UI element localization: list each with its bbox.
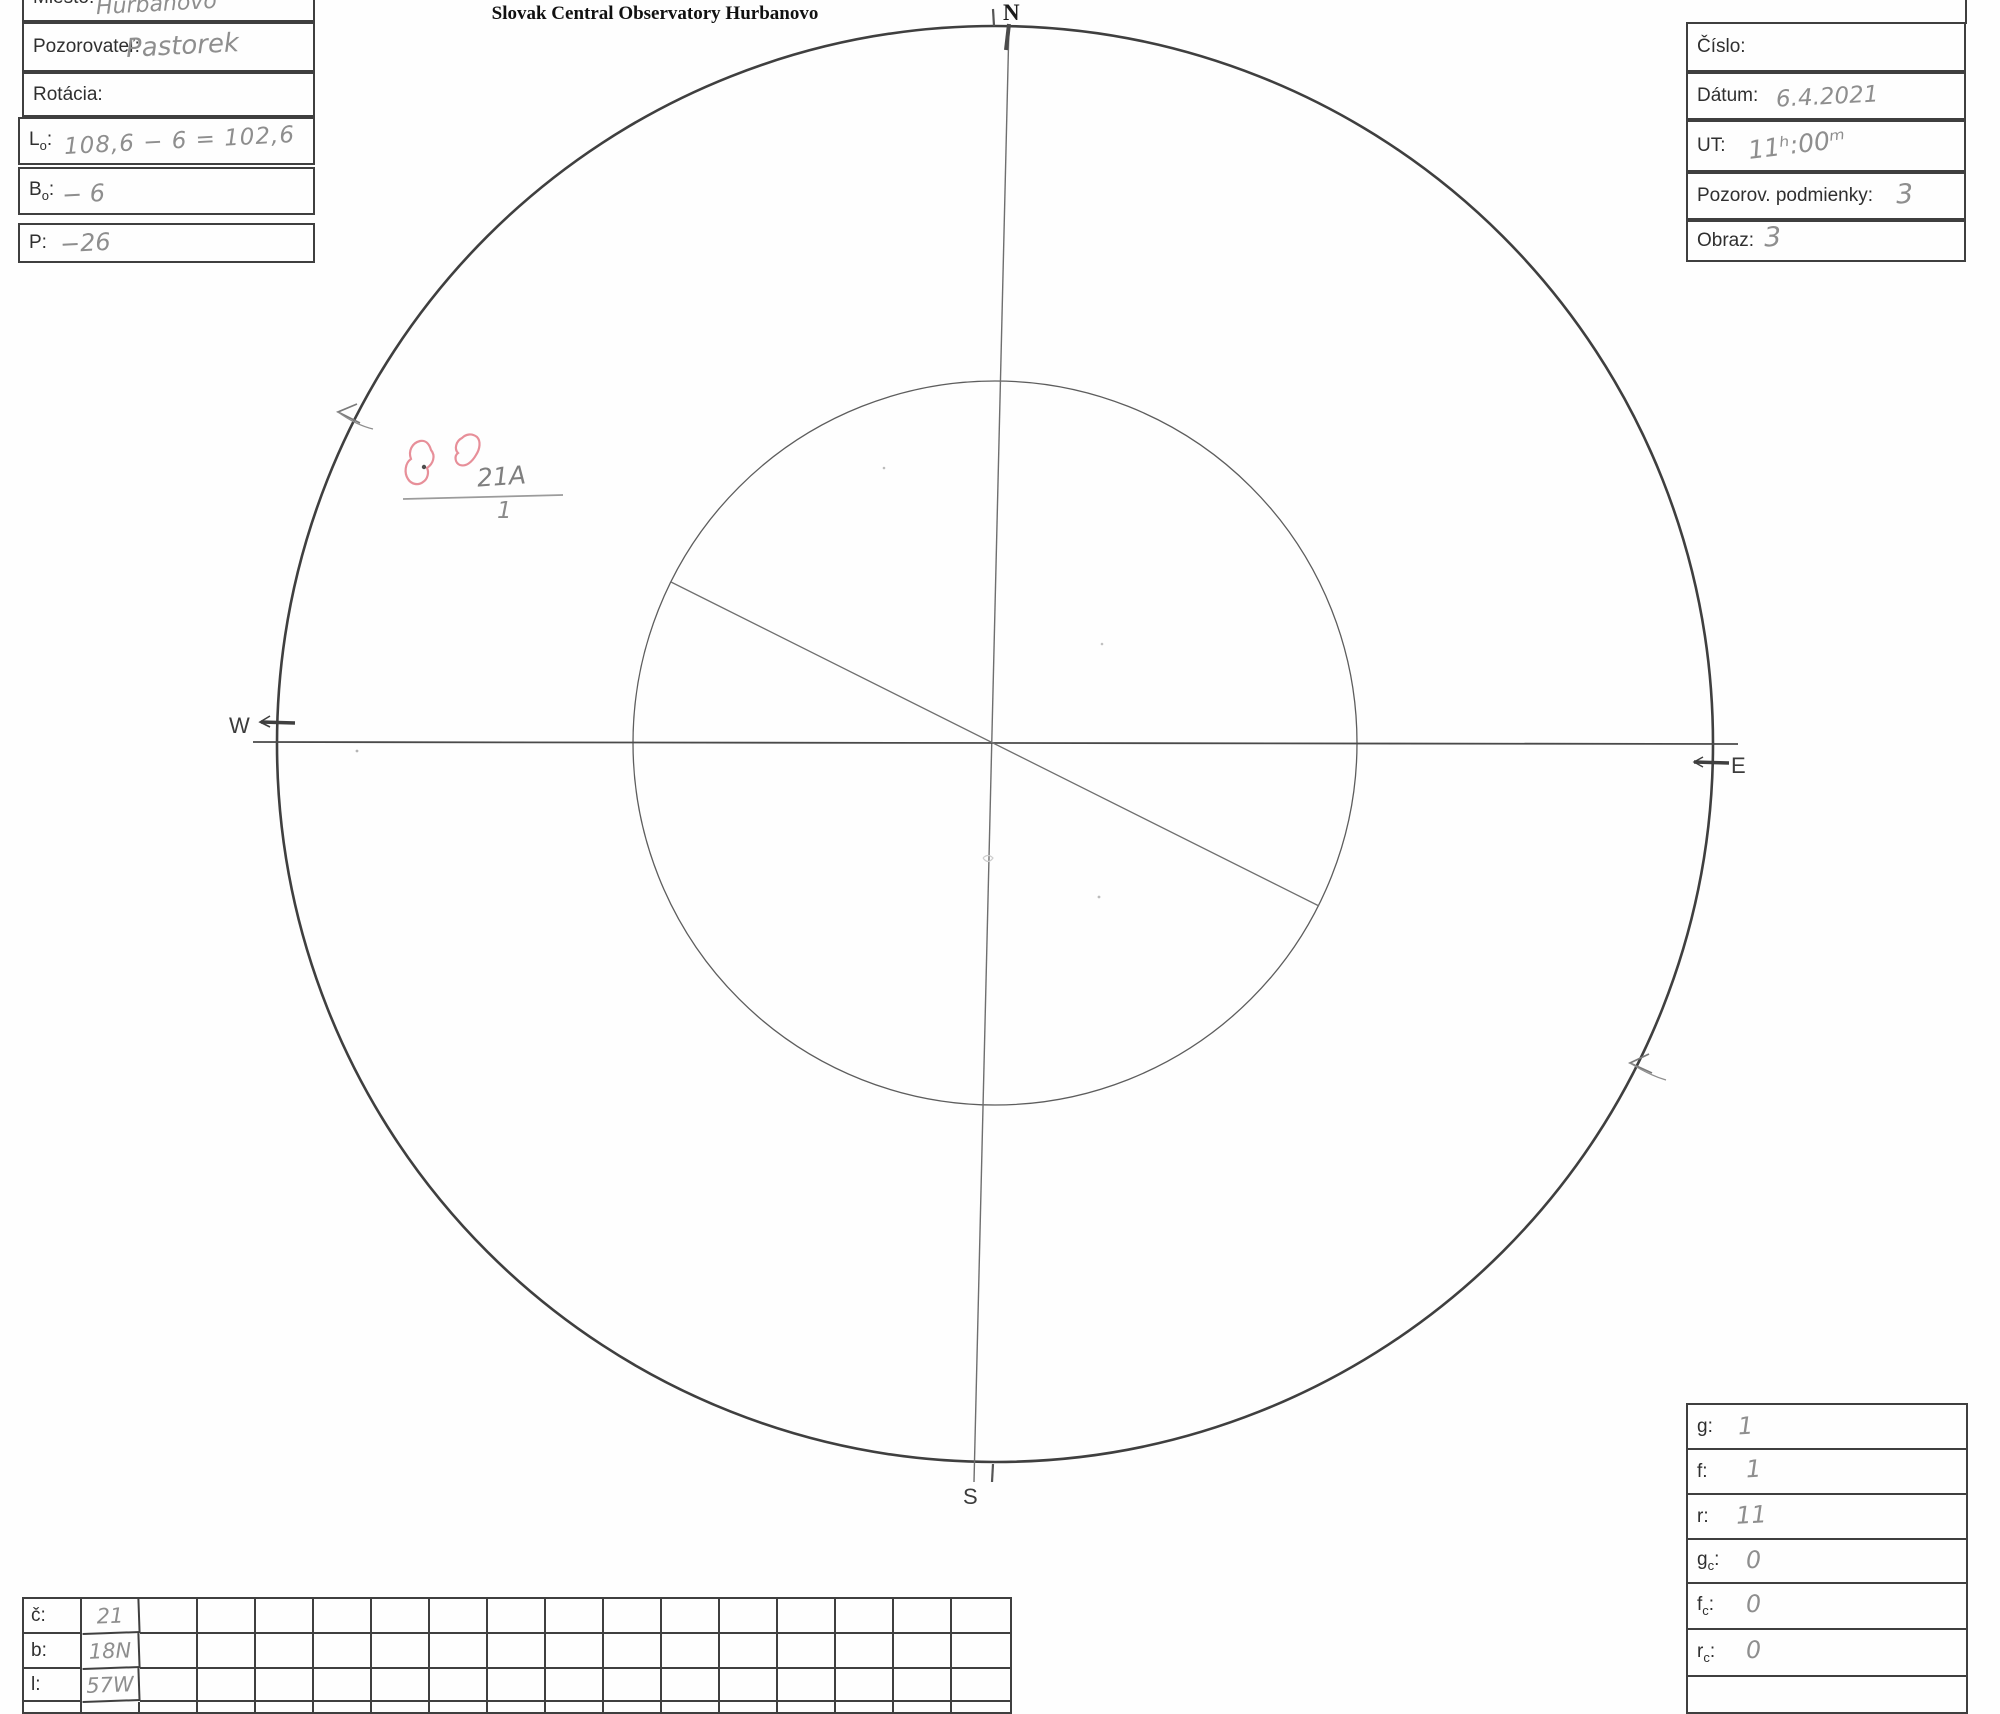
row-value-c: 21 bbox=[81, 1598, 140, 1635]
p-value-handwritten: −26 bbox=[59, 228, 111, 259]
pozorovatel-label: Pozorovateľ: bbox=[24, 36, 140, 58]
position-cell-empty bbox=[836, 1702, 894, 1714]
position-cell-empty bbox=[256, 1634, 314, 1669]
position-cell-empty bbox=[372, 1702, 430, 1714]
field-datum: Dátum: 6.4.2021 bbox=[1686, 72, 1966, 120]
gc-label: gc: bbox=[1688, 1549, 1719, 1573]
position-cell-empty bbox=[314, 1634, 372, 1669]
row-label-b: b: bbox=[24, 1634, 82, 1669]
field-g: g: 1 bbox=[1688, 1405, 1966, 1450]
field-ut: UT: 11ʰ:00ᵐ bbox=[1686, 120, 1966, 172]
scan-speck bbox=[1101, 643, 1104, 646]
position-cell-empty bbox=[662, 1702, 720, 1714]
position-cell-empty bbox=[720, 1599, 778, 1634]
field-r: r: 11 bbox=[1688, 1495, 1966, 1540]
position-cell-empty bbox=[778, 1599, 836, 1634]
p-label: P: bbox=[20, 232, 47, 254]
position-cell-empty bbox=[488, 1702, 546, 1714]
l0-value-handwritten: 108,6 − 6 = 102,6 bbox=[63, 122, 295, 160]
position-cell-empty bbox=[604, 1634, 662, 1669]
east-tick bbox=[1694, 762, 1729, 763]
position-cell-empty bbox=[546, 1599, 604, 1634]
position-cell-empty bbox=[836, 1599, 894, 1634]
position-cell-empty bbox=[372, 1599, 430, 1634]
position-cell-empty bbox=[778, 1669, 836, 1702]
b0-label: Bo: bbox=[20, 179, 54, 203]
l0-label: Lo: bbox=[20, 129, 52, 153]
position-cell-empty bbox=[720, 1702, 778, 1714]
position-cell-empty bbox=[662, 1669, 720, 1702]
obraz-label: Obraz: bbox=[1688, 230, 1754, 252]
field-miesto: Miesto: Hurbanovo bbox=[22, 0, 315, 22]
fc-value-handwritten: 0 bbox=[1745, 1590, 1762, 1619]
position-cell-empty bbox=[430, 1634, 488, 1669]
group-fraction-bar bbox=[403, 495, 563, 499]
compass-e-label: E bbox=[1731, 753, 1746, 778]
faint-pencil-smudge bbox=[983, 856, 993, 862]
position-cell-empty bbox=[778, 1634, 836, 1669]
miesto-label: Miesto: bbox=[24, 0, 94, 9]
pozorovatel-value-handwritten: Pastorek bbox=[125, 28, 239, 64]
position-cell-empty bbox=[24, 1702, 82, 1714]
table-partial-row bbox=[24, 1702, 1010, 1714]
row-label-c: č: bbox=[24, 1599, 82, 1634]
field-b0: Bo: − 6 bbox=[18, 167, 315, 215]
f-label: f: bbox=[1688, 1461, 1708, 1483]
f-value-handwritten: 1 bbox=[1745, 1455, 1762, 1484]
sunspot-sketch-left bbox=[406, 441, 434, 484]
row-label-l: l: bbox=[24, 1669, 82, 1702]
position-cell-empty bbox=[546, 1669, 604, 1702]
field-fc: fc: 0 bbox=[1688, 1584, 1966, 1630]
position-cell-empty bbox=[836, 1634, 894, 1669]
position-cell-empty bbox=[836, 1669, 894, 1702]
position-cell-empty bbox=[140, 1634, 198, 1669]
position-cell-empty bbox=[488, 1634, 546, 1669]
counts-form: g: 1 f: 1 r: 11 gc: 0 fc: 0 rc: 0 bbox=[1686, 1403, 1968, 1714]
rc-label: rc: bbox=[1688, 1641, 1715, 1665]
position-cell-empty bbox=[314, 1669, 372, 1702]
scan-speck bbox=[883, 467, 886, 470]
scan-speck bbox=[1098, 896, 1101, 899]
position-cell-empty bbox=[140, 1599, 198, 1634]
position-cell-empty bbox=[372, 1634, 430, 1669]
field-p: P: −26 bbox=[18, 223, 315, 263]
position-cell-empty bbox=[198, 1634, 256, 1669]
position-cell-empty bbox=[198, 1599, 256, 1634]
position-table: č: 21 b: 18N l: 57W bbox=[22, 1597, 1012, 1714]
field-podmienky: Pozorov. podmienky: 3 bbox=[1686, 172, 1966, 220]
field-rotacia: Rotácia: bbox=[22, 72, 315, 117]
ut-value-handwritten: 11ʰ:00ᵐ bbox=[1747, 124, 1847, 165]
position-cell-empty bbox=[140, 1702, 198, 1714]
position-cell-empty bbox=[952, 1599, 1010, 1634]
position-cell-empty bbox=[720, 1669, 778, 1702]
scan-speck bbox=[356, 750, 359, 753]
rc-value-handwritten: 0 bbox=[1745, 1636, 1762, 1665]
field-l0: Lo: 108,6 − 6 = 102,6 bbox=[18, 117, 315, 165]
group-designation: 21A bbox=[476, 460, 527, 492]
vertical-axis-line bbox=[974, 25, 1009, 1482]
field-cislo: Číslo: bbox=[1686, 22, 1966, 72]
position-cell-empty bbox=[256, 1599, 314, 1634]
west-tick bbox=[261, 722, 295, 723]
group-count: 1 bbox=[497, 498, 512, 524]
b0-value-handwritten: − 6 bbox=[61, 179, 105, 209]
umbra-dot bbox=[422, 465, 426, 469]
position-cell-empty bbox=[894, 1599, 952, 1634]
row-value-l: 57W bbox=[81, 1668, 140, 1703]
position-cell-empty bbox=[82, 1702, 140, 1714]
rotacia-label: Rotácia: bbox=[24, 84, 103, 106]
r-label: r: bbox=[1688, 1506, 1709, 1528]
podmienky-value-handwritten: 3 bbox=[1895, 179, 1914, 211]
obraz-value-handwritten: 3 bbox=[1763, 222, 1782, 254]
position-cell-empty bbox=[894, 1702, 952, 1714]
datum-label: Dátum: bbox=[1688, 85, 1758, 107]
compass-w-label: W bbox=[229, 713, 250, 738]
gc-value-handwritten: 0 bbox=[1745, 1546, 1762, 1575]
position-cell-empty bbox=[604, 1669, 662, 1702]
r-value-handwritten: 11 bbox=[1735, 1500, 1767, 1530]
position-cell-empty bbox=[604, 1599, 662, 1634]
position-cell-empty bbox=[430, 1599, 488, 1634]
position-cell-empty bbox=[662, 1634, 720, 1669]
position-cell-empty bbox=[546, 1634, 604, 1669]
position-cell-empty bbox=[952, 1669, 1010, 1702]
position-cell-empty bbox=[952, 1634, 1010, 1669]
compass-s-label: S bbox=[963, 1484, 978, 1509]
north-tick bbox=[993, 9, 994, 26]
position-cell-empty bbox=[314, 1702, 372, 1714]
position-cell-empty bbox=[778, 1702, 836, 1714]
field-gc: gc: 0 bbox=[1688, 1540, 1966, 1584]
position-cell-empty bbox=[198, 1669, 256, 1702]
position-cell-empty bbox=[430, 1702, 488, 1714]
position-cell-empty bbox=[140, 1669, 198, 1702]
field-rc: rc: 0 bbox=[1688, 1630, 1966, 1677]
position-cell-empty bbox=[604, 1702, 662, 1714]
cislo-label: Číslo: bbox=[1688, 36, 1746, 58]
field-pozorovatel: Pozorovateľ: Pastorek bbox=[22, 22, 315, 72]
south-tick bbox=[992, 1464, 993, 1482]
scanned-solar-observation-form: N S W E Slovak Central Observatory Hurba… bbox=[0, 0, 2000, 1714]
position-cell-empty bbox=[662, 1599, 720, 1634]
position-cell-empty bbox=[256, 1669, 314, 1702]
ut-label: UT: bbox=[1688, 135, 1726, 157]
table-row: č: 21 bbox=[24, 1599, 1010, 1634]
position-cell-empty bbox=[894, 1669, 952, 1702]
compass-n-label: N bbox=[1003, 0, 1020, 25]
table-row: b: 18N bbox=[24, 1634, 1010, 1669]
podmienky-label: Pozorov. podmienky: bbox=[1688, 185, 1873, 207]
position-cell-empty bbox=[430, 1669, 488, 1702]
position-cell-empty bbox=[488, 1669, 546, 1702]
position-cell-empty bbox=[952, 1702, 1010, 1714]
position-cell-empty bbox=[546, 1702, 604, 1714]
position-cell-empty bbox=[314, 1599, 372, 1634]
field-obraz: Obraz: 3 bbox=[1686, 220, 1966, 262]
sunspot-sketch-right bbox=[456, 434, 480, 465]
counts-partial-row bbox=[1688, 1677, 1966, 1712]
position-cell-empty bbox=[720, 1634, 778, 1669]
page-title: Slovak Central Observatory Hurbanovo bbox=[460, 3, 850, 25]
datum-value-handwritten: 6.4.2021 bbox=[1775, 81, 1879, 112]
position-cell-empty bbox=[198, 1702, 256, 1714]
row-value-b: 18N bbox=[81, 1633, 140, 1670]
position-cell-empty bbox=[256, 1702, 314, 1714]
g-label: g: bbox=[1688, 1416, 1713, 1438]
field-f: f: 1 bbox=[1688, 1450, 1966, 1495]
position-cell-empty bbox=[894, 1634, 952, 1669]
position-cell-empty bbox=[372, 1669, 430, 1702]
fc-label: fc: bbox=[1688, 1594, 1714, 1618]
table-row: l: 57W bbox=[24, 1669, 1010, 1702]
g-value-handwritten: 1 bbox=[1737, 1412, 1754, 1441]
position-cell-empty bbox=[488, 1599, 546, 1634]
miesto-value-handwritten: Hurbanovo bbox=[95, 0, 217, 20]
